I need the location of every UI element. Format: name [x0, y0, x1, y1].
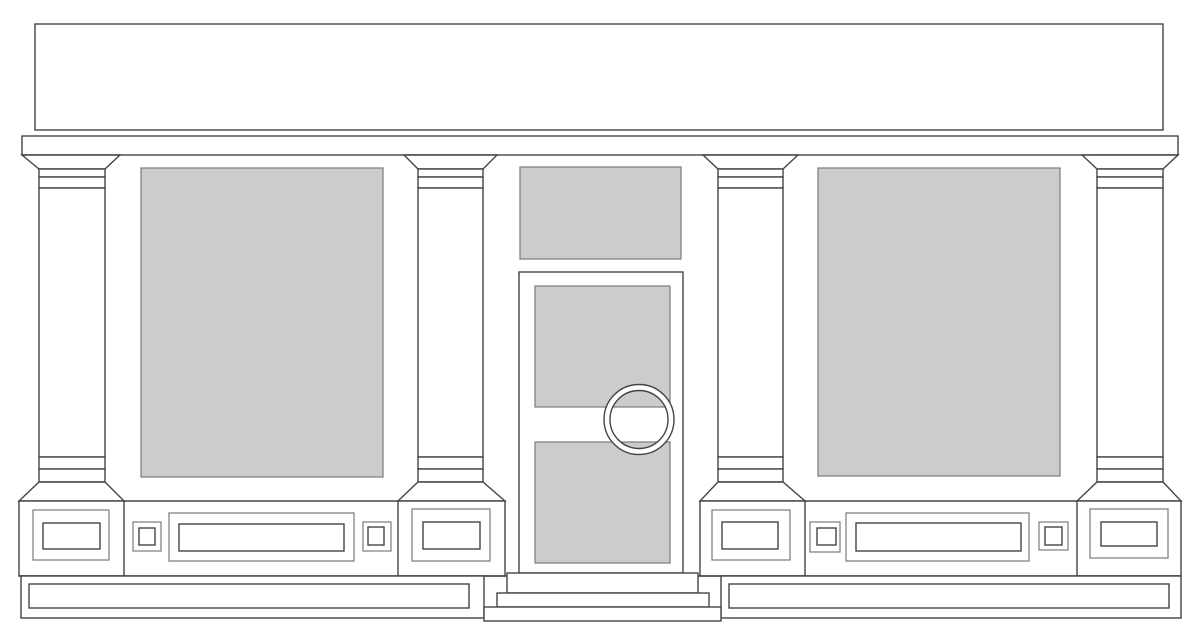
right-display-window-glass: [818, 168, 1060, 476]
door-step-top: [507, 573, 698, 593]
pilaster-1-base-band-top: [39, 457, 105, 469]
pilaster-3-capital-flare: [703, 155, 798, 169]
pilaster-1-base-band-bottom: [39, 469, 105, 482]
transom-glass: [520, 167, 681, 259]
pilaster-2-shaft: [418, 188, 483, 457]
pilaster-4-shaft: [1097, 188, 1163, 457]
pilaster-4-base-flare: [1077, 482, 1181, 501]
stallriser-right-long-panel-inner: [856, 523, 1021, 551]
pilaster-4-base-band-bottom: [1097, 469, 1163, 482]
pilaster-4-capital-flare: [1082, 155, 1178, 169]
baseboard-left-outer: [21, 576, 484, 618]
pilaster-3-base-flare: [700, 482, 805, 501]
pilaster-2-base-flare: [398, 482, 505, 501]
pilaster-4-base-band-top: [1097, 457, 1163, 469]
stallriser-left-long-panel-outer: [169, 513, 354, 561]
pilaster-4-plinth: [1077, 501, 1181, 576]
pilaster-2-base-band-bottom: [418, 469, 483, 482]
pilaster-3-plinth: [700, 501, 805, 576]
stallriser-right-square-panel-c-inner: [817, 528, 836, 545]
pilaster-3-capital-band-bottom: [718, 177, 783, 188]
stallriser-left-square-panel-b-inner: [368, 527, 384, 545]
pilaster-4-capital-band-bottom: [1097, 177, 1163, 188]
door-step-bottom: [484, 607, 721, 621]
stallriser-right-long-panel-outer: [846, 513, 1029, 561]
pilaster-2-capital-band-bottom: [418, 177, 483, 188]
left-display-window-glass: [141, 168, 383, 477]
pilaster-2-plinth: [398, 501, 505, 576]
storefront-elevation-canvas: [0, 0, 1200, 639]
stallriser-left-square-panel-a-outer: [133, 522, 161, 551]
pilaster-2-capital-band-top: [418, 169, 483, 177]
pilaster-3-shaft: [718, 188, 783, 457]
pilaster-2-capital-flare: [404, 155, 497, 169]
stallriser-left-long-panel-inner: [179, 524, 344, 551]
door-glass-lower: [535, 442, 670, 563]
stallriser-right-square-panel-d-outer: [1039, 522, 1068, 550]
pilaster-1-capital-band-bottom: [39, 177, 105, 188]
stallriser-right-square-panel-d-inner: [1045, 527, 1062, 545]
storefront-elevation-drawing: [0, 0, 1200, 639]
cornice: [22, 136, 1178, 155]
pilaster-1-base-flare: [19, 482, 124, 501]
pilaster-3-base-band-top: [718, 457, 783, 469]
pilaster-3-capital-band-top: [718, 169, 783, 177]
door-step-middle: [497, 593, 709, 607]
pilaster-1-plinth: [19, 501, 124, 576]
pilaster-3-base-band-bottom: [718, 469, 783, 482]
pilaster-1-capital-flare: [22, 155, 120, 169]
baseboard-right-outer: [721, 576, 1181, 618]
pilaster-2-base-band-top: [418, 457, 483, 469]
stallriser-left-square-panel-a-inner: [139, 528, 155, 545]
fascia-signboard: [35, 24, 1163, 130]
pilaster-1-shaft: [39, 188, 105, 457]
pilaster-4-capital-band-top: [1097, 169, 1163, 177]
pilaster-1-capital-band-top: [39, 169, 105, 177]
